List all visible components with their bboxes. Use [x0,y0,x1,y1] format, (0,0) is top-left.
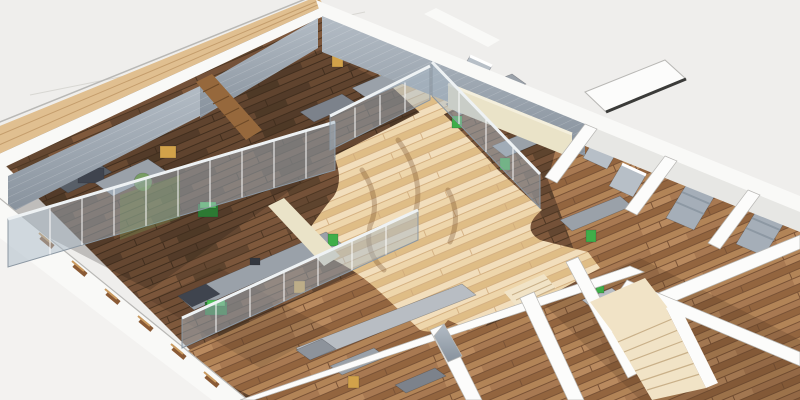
render-canvas [0,0,800,400]
chair-e-tan [348,376,359,388]
chair-corridor-green [328,234,338,246]
monitor-d [250,258,260,265]
floorplan-render [0,0,800,400]
chair-a-tan [160,146,176,158]
chair-f3-green [586,230,596,242]
